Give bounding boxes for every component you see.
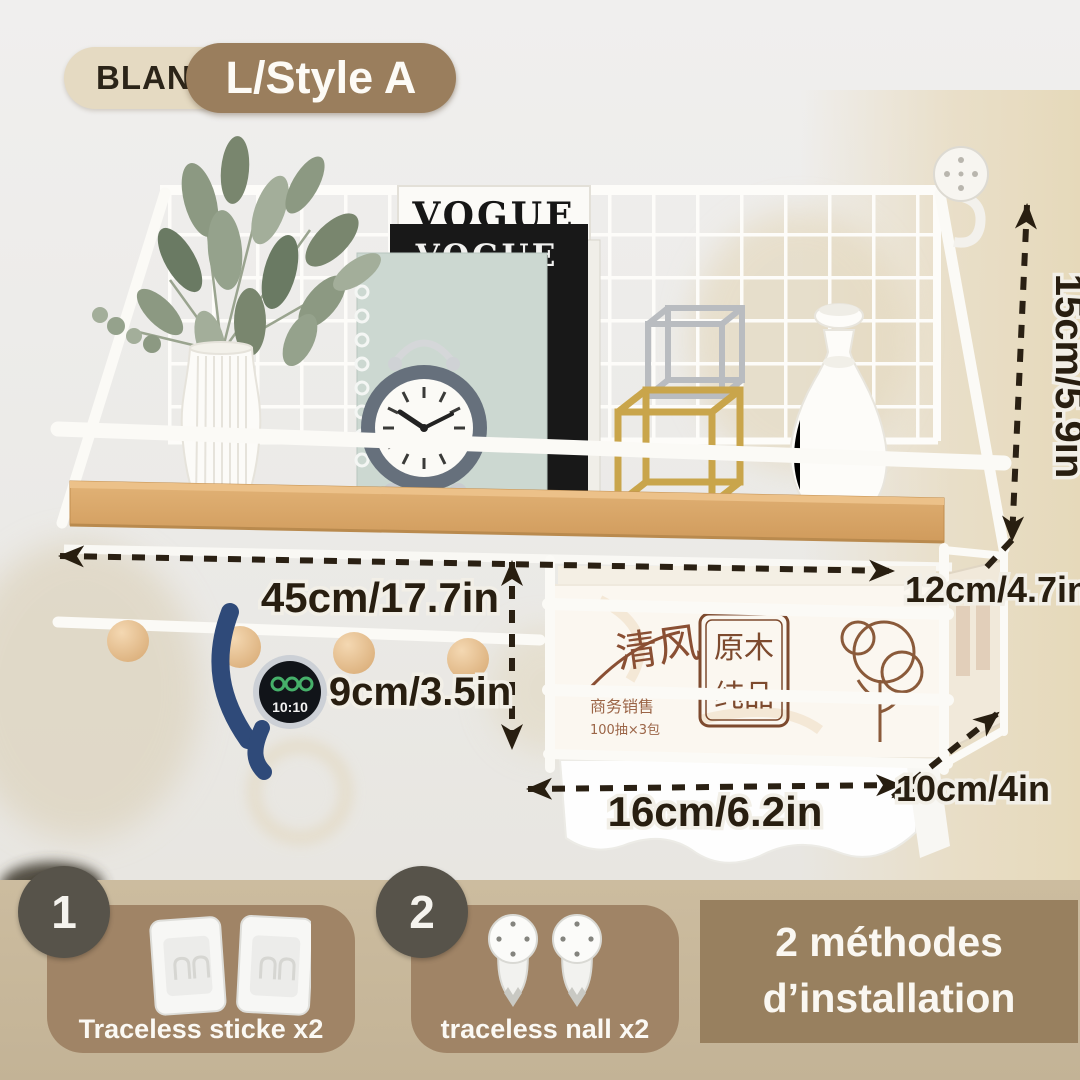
left-frame-bar bbox=[62, 193, 165, 523]
heading-line-2: d’installation bbox=[700, 970, 1078, 1026]
method-1-label: Traceless sticke x2 bbox=[47, 1014, 355, 1045]
dim-height-label: 15cm/5.9in bbox=[1047, 274, 1080, 479]
corner-shadow bbox=[0, 540, 200, 840]
dim-width-label: 45cm/17.7in bbox=[261, 574, 499, 621]
seal-top-text: 原木 bbox=[714, 631, 774, 666]
product-photo: VOGUE VOGUE bbox=[0, 0, 1080, 880]
method-2-label: traceless nall x2 bbox=[411, 1014, 679, 1045]
nail-hooks-illustration bbox=[445, 911, 645, 1021]
watch-shadow bbox=[254, 746, 346, 838]
dim-depth-label: 10cm/4in bbox=[896, 768, 1050, 809]
installation-heading-box: 2 méthodes d’installation bbox=[700, 900, 1078, 1043]
dim-hook-drop-label: 9cm/3.5in bbox=[329, 670, 511, 714]
heading-line-1: 2 méthodes bbox=[700, 914, 1078, 970]
sticker-pads-illustration bbox=[91, 911, 311, 1019]
shelf-scene-illustration: VOGUE VOGUE bbox=[0, 0, 1080, 880]
dim-rack-offset-label: 12cm/4.7in bbox=[905, 569, 1080, 610]
style-badge: L/Style A bbox=[186, 43, 456, 113]
method-2-number: 2 bbox=[376, 866, 468, 958]
method-1-number: 1 bbox=[18, 866, 110, 958]
wood-ball-hook bbox=[333, 632, 375, 674]
watch-time: 10:10 bbox=[272, 699, 308, 715]
wood-ball-hook bbox=[107, 620, 149, 662]
product-infographic: VOGUE VOGUE bbox=[0, 0, 1080, 1080]
tissue-line1: 商务销售 bbox=[590, 697, 654, 716]
tissue-line2: 100抽×3包 bbox=[590, 723, 660, 738]
dim-rack-width-label: 16cm/6.2in bbox=[608, 788, 823, 835]
